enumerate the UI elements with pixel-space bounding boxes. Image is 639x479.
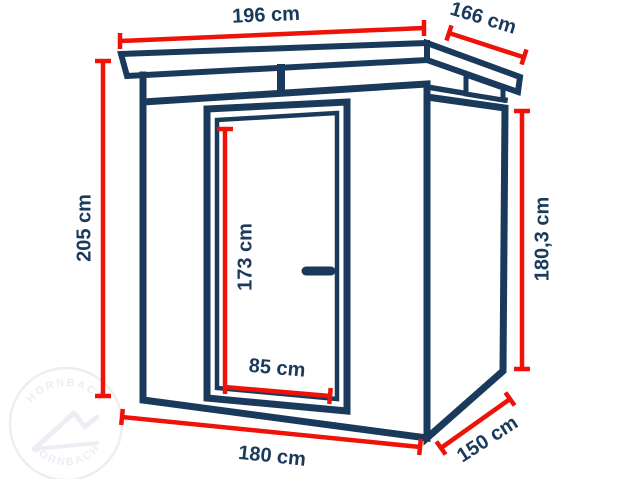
label-height-total: 205 cm bbox=[73, 194, 95, 262]
dimension-height-total bbox=[95, 61, 111, 396]
diagram-svg: HORNBACH HORNBACH bbox=[0, 0, 639, 479]
side-wall bbox=[427, 97, 505, 438]
label-door-height: 173 cm bbox=[234, 223, 256, 291]
label-base-width: 180 cm bbox=[237, 442, 307, 471]
label-roof-depth: 166 cm bbox=[448, 0, 519, 39]
dimension-wall-height bbox=[514, 111, 530, 369]
shed-dimension-diagram: HORNBACH HORNBACH bbox=[0, 0, 639, 479]
watermark-text-top: HORNBACH bbox=[25, 377, 108, 406]
shed-drawing bbox=[121, 43, 520, 438]
label-base-depth: 150 cm bbox=[453, 412, 522, 467]
label-roof-width: 196 cm bbox=[232, 3, 301, 28]
roof-front-fascia bbox=[121, 43, 427, 76]
label-wall-height: 180,3 cm bbox=[531, 197, 553, 282]
